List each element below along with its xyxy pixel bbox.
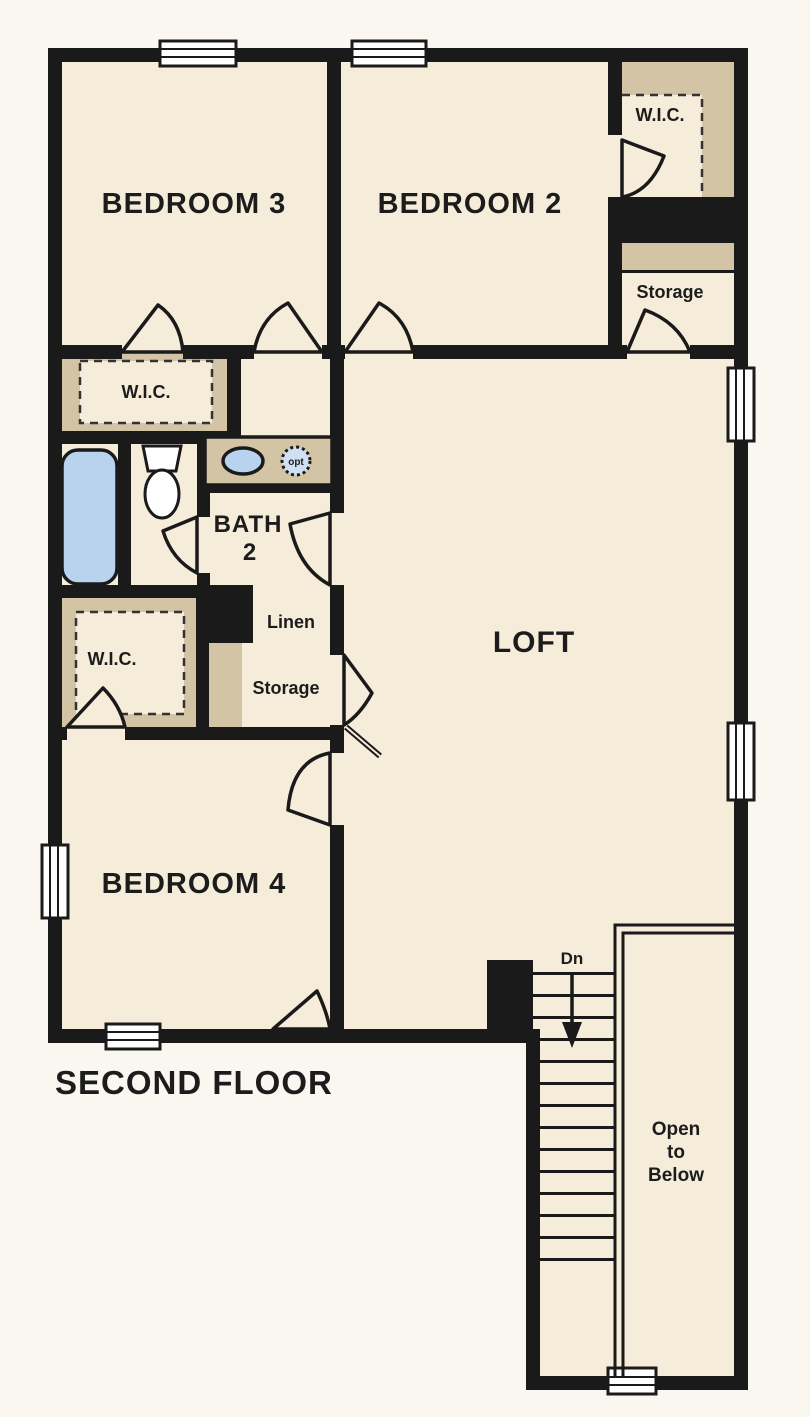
storage-middle-shelf — [208, 643, 242, 727]
window-bedroom4-bottom — [106, 1024, 160, 1049]
wic-lower-left-label: W.I.C. — [88, 649, 137, 669]
optional-sink-label: opt — [288, 457, 304, 468]
bathtub-icon — [62, 450, 117, 584]
open-to-below-line1: Open — [652, 1119, 701, 1140]
floor-plan-drawing: opt BEDROOM 3 BEDROOM 2 W.I.C. Storage W… — [0, 0, 810, 1417]
bath-label-line1: BATH — [214, 511, 283, 538]
storage-top-right-shelf — [622, 243, 734, 272]
bath-label-line2: 2 — [243, 539, 257, 566]
linen-label: Linen — [267, 612, 315, 632]
stairs-down-label: Dn — [561, 949, 584, 968]
storage-top-right-label: Storage — [636, 282, 703, 302]
open-to-below-line3: Below — [648, 1165, 704, 1186]
window-loft-right-lower — [728, 723, 754, 800]
window-bedroom3-top — [160, 41, 236, 66]
bedroom4-label: BEDROOM 4 — [102, 868, 287, 900]
window-loft-right-upper — [728, 368, 754, 441]
floor-plan-page: opt BEDROOM 3 BEDROOM 2 W.I.C. Storage W… — [0, 0, 810, 1417]
window-bedroom4-left — [42, 845, 68, 918]
storage-middle-label: Storage — [252, 678, 319, 698]
bedroom3-label: BEDROOM 3 — [102, 188, 287, 220]
sink-icon — [223, 448, 263, 474]
storage-top-right-shelf-edge — [622, 270, 734, 273]
stairwell-floor — [540, 1029, 734, 1376]
wic-mid-left-label: W.I.C. — [122, 382, 171, 402]
window-bedroom2-top — [352, 41, 426, 66]
open-to-below-line2: to — [667, 1142, 685, 1163]
floor-title: SECOND FLOOR — [55, 1064, 333, 1101]
loft-label: LOFT — [493, 626, 575, 659]
toilet-icon — [143, 446, 181, 518]
bedroom2-label: BEDROOM 2 — [378, 188, 563, 220]
wic-top-right-label: W.I.C. — [636, 105, 685, 125]
